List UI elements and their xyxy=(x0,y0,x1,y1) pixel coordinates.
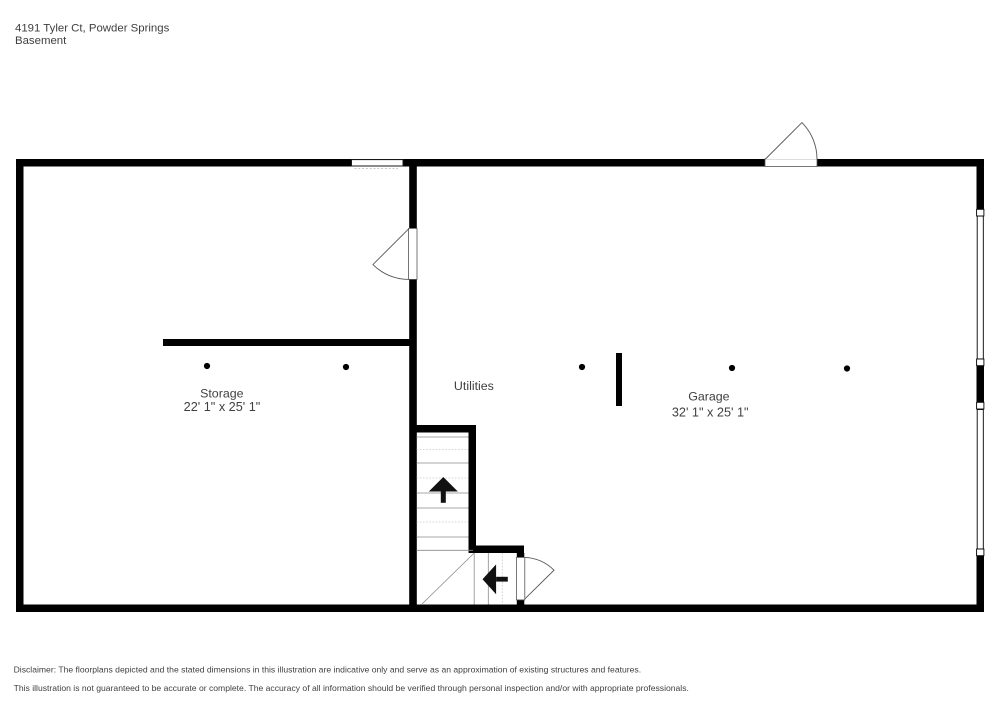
svg-text:Utilities: Utilities xyxy=(454,379,494,393)
svg-text:4191 Tyler Ct, Powder Springs: 4191 Tyler Ct, Powder Springs xyxy=(15,22,170,34)
svg-text:Basement: Basement xyxy=(15,35,67,47)
svg-text:Storage: Storage xyxy=(200,387,244,401)
svg-text:Disclaimer: The floorplans dep: Disclaimer: The floorplans depicted and … xyxy=(14,665,642,675)
svg-text:Garage: Garage xyxy=(688,389,729,403)
svg-text:22' 1" x 25' 1": 22' 1" x 25' 1" xyxy=(184,400,261,414)
svg-text:32' 1" x 25' 1": 32' 1" x 25' 1" xyxy=(672,406,749,420)
svg-text:This illustration is not guara: This illustration is not guaranteed to b… xyxy=(14,683,689,693)
